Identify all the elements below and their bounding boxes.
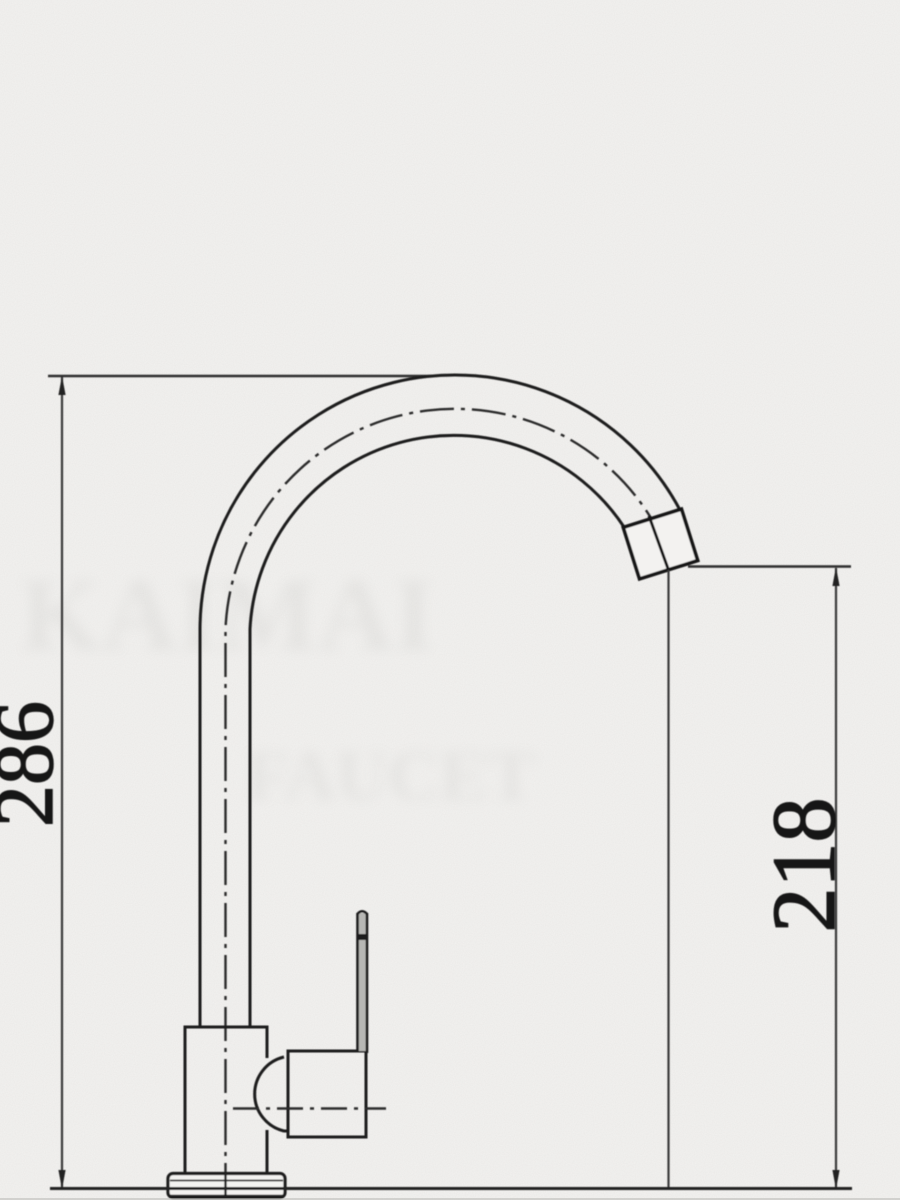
svg-text:286: 286 <box>0 701 71 827</box>
svg-text:218: 218 <box>755 798 854 933</box>
svg-text:FAUCET: FAUCET <box>245 736 536 816</box>
